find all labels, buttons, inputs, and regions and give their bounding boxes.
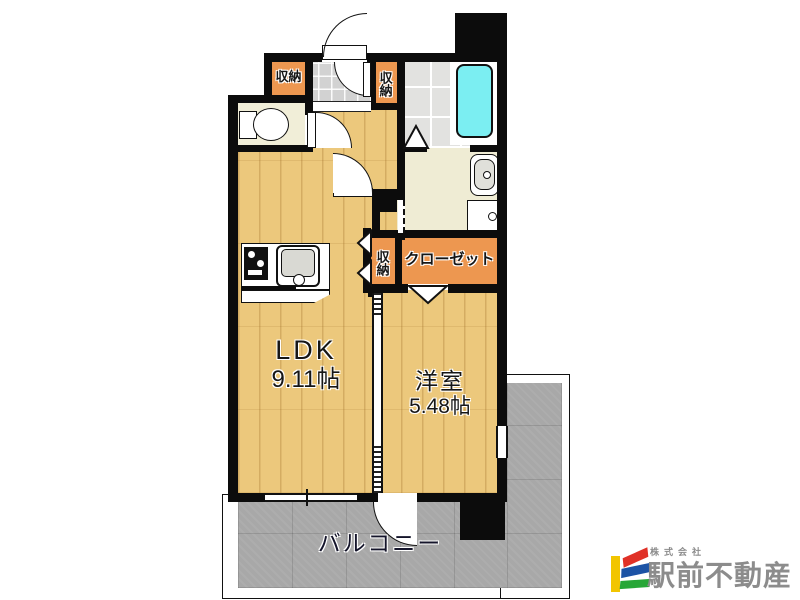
balcony-door-opening: [378, 493, 417, 502]
floor-plan: 収納 収納 収納 クローゼット LDK 9.11帖 洋室 5.48帖 バルコニー…: [0, 0, 800, 600]
wall: [470, 145, 507, 152]
ldk-window-mullion: [306, 489, 308, 506]
logo-mark-yellow-bar: [611, 556, 620, 592]
ldk-window: [265, 493, 357, 502]
closet-folding-door-icon: [407, 285, 449, 305]
entry-door-leaf: [363, 62, 371, 97]
toilet-door-leaf: [307, 112, 316, 148]
sink-drain: [293, 274, 305, 286]
storage-entrance-right-label: 収納: [378, 66, 392, 102]
bathtub: [456, 64, 493, 138]
washbasin-drain: [483, 171, 491, 179]
stove-burner: [248, 251, 255, 258]
balcony-deck-side: [507, 383, 562, 588]
washer-drain: [488, 212, 497, 221]
toilet-bowl: [253, 108, 289, 141]
partition-hatch: [374, 445, 381, 493]
front-door-swing: [323, 13, 367, 57]
ldk-label: LDK 9.11帖: [238, 336, 374, 393]
entry-step: [313, 101, 371, 112]
wall: [228, 145, 313, 152]
ldk-area: 9.11帖: [238, 367, 374, 392]
western-room-window: [496, 426, 508, 458]
western-room-name: 洋室: [384, 369, 496, 393]
partition-hatch: [374, 293, 381, 315]
western-room-area: 5.48帖: [384, 396, 496, 418]
wall: [371, 62, 376, 103]
wall: [417, 493, 507, 502]
stove-burner: [257, 260, 264, 267]
bath-folding-door-icon: [402, 124, 430, 150]
closet-label: クローゼット: [402, 252, 497, 268]
sliding-partition: [372, 293, 383, 493]
washroom-sliding-door: [398, 200, 405, 233]
storage-folding-door-icon: [355, 229, 373, 287]
wall: [357, 493, 378, 502]
wall: [264, 53, 322, 62]
balcony-label: バルコニー: [240, 531, 520, 555]
counter-lower: [241, 290, 330, 303]
sink-basin: [281, 249, 315, 277]
wall: [228, 95, 238, 502]
wall: [395, 238, 402, 284]
storage-hall-label: 収納: [375, 243, 389, 283]
ldk-name: LDK: [238, 336, 374, 364]
storage-entrance-left-label: 収納: [272, 70, 305, 84]
company-name: 駅前不動産: [647, 554, 792, 594]
stove-grill: [248, 270, 262, 275]
wall: [380, 197, 397, 212]
wall: [228, 493, 265, 502]
western-room-label: 洋室 5.48帖: [384, 369, 496, 418]
wall: [363, 230, 507, 238]
wall: [371, 103, 405, 110]
company-logo: 株式会社 駅前不動産: [598, 534, 798, 598]
logo-mark-green-bar: [620, 579, 651, 589]
wall: [448, 284, 507, 293]
